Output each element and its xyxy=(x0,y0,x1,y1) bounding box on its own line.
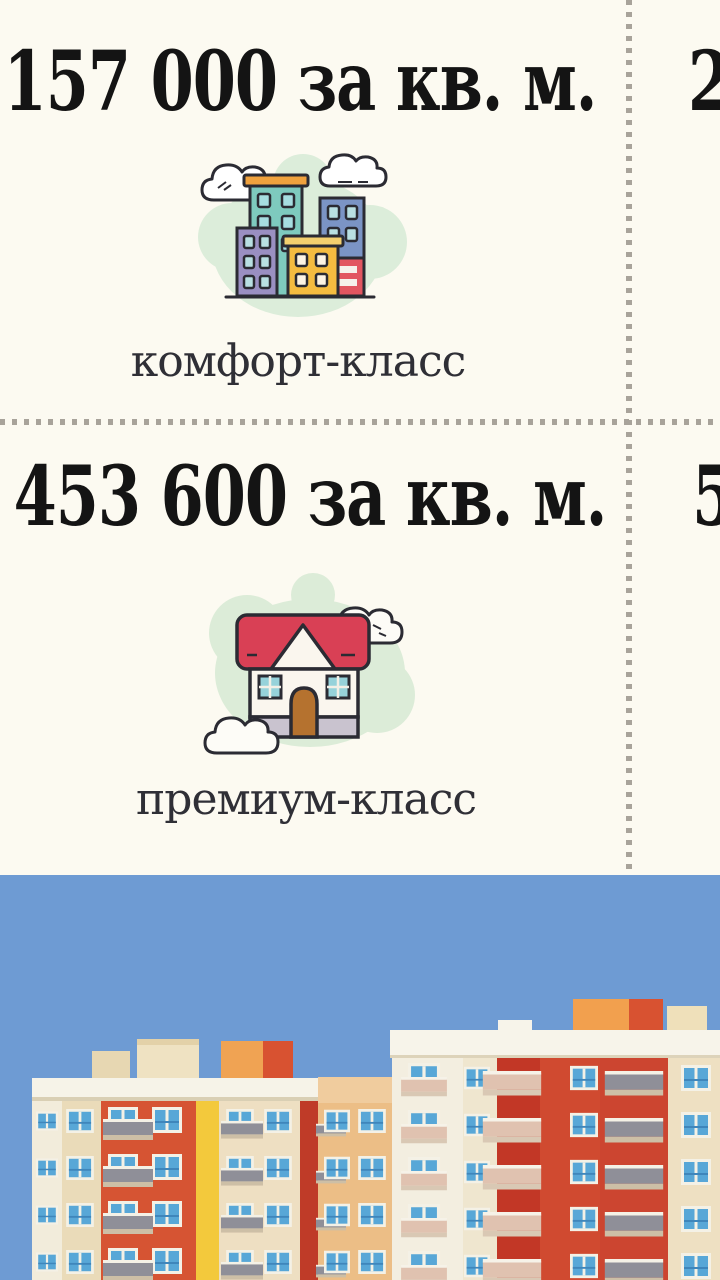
purple-building xyxy=(237,228,277,296)
cloud-right-icon xyxy=(320,155,386,186)
city-buildings-svg xyxy=(198,142,408,322)
real-estate-price-infographic: 157 000 за кв. м. xyxy=(0,0,720,1280)
cloud-bottom-left-icon xyxy=(205,718,278,753)
apartment-buildings-illustration xyxy=(0,875,720,1280)
city-buildings-icon xyxy=(198,142,408,322)
price-premium: 453 600 за кв. м. xyxy=(0,456,620,538)
price-comfort: 157 000 за кв. м. xyxy=(0,41,600,123)
price-partial-bottom: 5 xyxy=(692,456,720,538)
right-building xyxy=(390,999,720,1280)
price-partial-top: 2 xyxy=(688,41,720,123)
horizontal-dotted-divider xyxy=(0,419,720,425)
apartment-buildings-svg xyxy=(0,875,720,1280)
house-icon xyxy=(195,563,425,768)
label-comfort: комфорт-класс xyxy=(0,338,596,386)
label-premium: премиум-класс xyxy=(0,776,612,824)
vertical-dotted-divider xyxy=(626,0,632,876)
house-svg xyxy=(195,563,425,768)
yellow-building xyxy=(283,236,343,296)
